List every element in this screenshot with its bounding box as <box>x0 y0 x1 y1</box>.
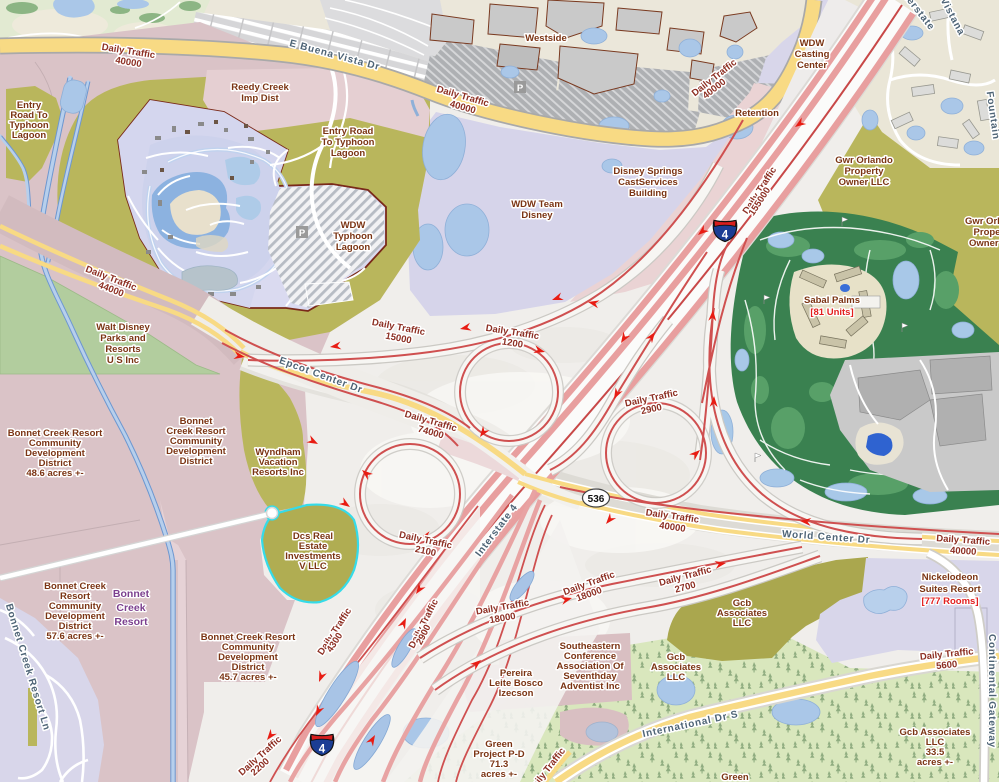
svg-text:Building: Building <box>629 188 667 199</box>
svg-text:Disney: Disney <box>521 210 553 221</box>
svg-text:Owner L: Owner L <box>969 238 999 249</box>
svg-text:Retention: Retention <box>735 108 779 119</box>
svg-text:57.6 acres +-: 57.6 acres +- <box>46 631 103 642</box>
svg-text:Creek: Creek <box>116 602 145 614</box>
svg-text:Sabal Palms: Sabal Palms <box>804 295 860 306</box>
svg-text:Green: Green <box>721 772 749 782</box>
svg-text:40000: 40000 <box>950 545 977 558</box>
svg-text:Gwr Orla: Gwr Orla <box>965 216 999 227</box>
svg-text:Resort: Resort <box>114 616 148 628</box>
svg-text:Suites Resort: Suites Resort <box>919 584 981 595</box>
svg-text:45.7 acres +-: 45.7 acres +- <box>219 672 276 683</box>
svg-text:P: P <box>517 83 524 94</box>
svg-text:5600: 5600 <box>936 659 958 672</box>
svg-text:Bonnet: Bonnet <box>113 588 150 600</box>
svg-text:Disney Springs: Disney Springs <box>613 166 682 177</box>
svg-text:Westside: Westside <box>525 33 567 44</box>
svg-text:Lagoon: Lagoon <box>331 148 365 159</box>
svg-text:Continental Gateway: Continental Gateway <box>986 634 997 748</box>
svg-text:4: 4 <box>722 230 729 242</box>
svg-text:[81 Units]: [81 Units] <box>810 307 853 318</box>
svg-text:Nickelodeon: Nickelodeon <box>922 572 979 583</box>
svg-text:Imp Dist: Imp Dist <box>241 93 279 104</box>
svg-text:48.6 acres +-: 48.6 acres +- <box>26 468 83 479</box>
svg-text:Prope: Prope <box>974 227 999 238</box>
svg-text:Property: Property <box>844 166 884 177</box>
svg-text:Adventist Inc: Adventist Inc <box>560 681 620 692</box>
svg-text:Gwr Orlando: Gwr Orlando <box>835 155 893 166</box>
svg-text:Lagoon: Lagoon <box>12 130 46 141</box>
svg-text:Reedy Creek: Reedy Creek <box>231 82 289 93</box>
svg-text:Center: Center <box>797 60 827 71</box>
svg-text:Parks and: Parks and <box>100 333 146 344</box>
svg-text:LLC: LLC <box>733 618 752 629</box>
svg-text:Entry Road: Entry Road <box>323 126 374 137</box>
svg-text:Casting: Casting <box>795 49 830 60</box>
svg-text:District: District <box>180 456 214 467</box>
svg-text:CastServices: CastServices <box>618 177 678 188</box>
svg-text:Lagoon: Lagoon <box>336 242 370 253</box>
svg-text:WDW Team: WDW Team <box>511 199 563 210</box>
svg-text:P: P <box>299 228 306 239</box>
svg-text:WDW: WDW <box>341 220 366 231</box>
svg-text:Izecson: Izecson <box>499 688 534 699</box>
svg-text:U S Inc: U S Inc <box>107 355 139 366</box>
svg-text:V LLC: V LLC <box>299 561 327 572</box>
svg-text:Resorts: Resorts <box>105 344 140 355</box>
svg-text:Owner LLC: Owner LLC <box>839 177 890 188</box>
svg-text:LLC: LLC <box>667 672 686 683</box>
svg-text:acres +-: acres +- <box>917 757 953 768</box>
svg-text:WDW: WDW <box>800 38 825 49</box>
svg-text:Typhoon: Typhoon <box>333 231 373 242</box>
svg-text:Walt Disney: Walt Disney <box>96 322 150 333</box>
svg-text:536: 536 <box>588 494 605 505</box>
svg-text:4: 4 <box>319 744 326 756</box>
svg-text:Resorts Inc: Resorts Inc <box>252 467 304 478</box>
svg-text:[777 Rooms]: [777 Rooms] <box>921 596 978 607</box>
svg-text:To Typhoon: To Typhoon <box>322 137 375 148</box>
svg-text:acres +-: acres +- <box>481 769 517 780</box>
